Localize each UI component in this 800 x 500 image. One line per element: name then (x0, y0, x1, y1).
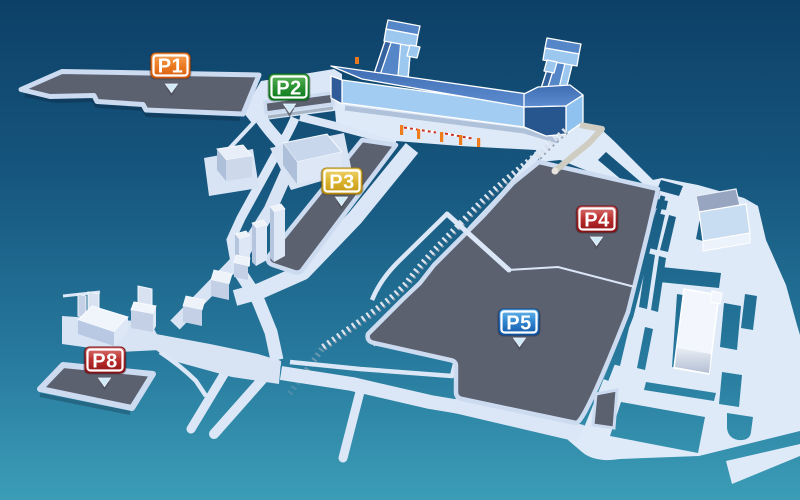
svg-text:P4: P4 (584, 210, 610, 232)
svg-text:P2: P2 (276, 78, 301, 100)
svg-text:P8: P8 (92, 351, 117, 373)
svg-text:P3: P3 (329, 172, 354, 194)
svg-text:P1: P1 (158, 56, 183, 78)
svg-text:P5: P5 (506, 313, 531, 335)
